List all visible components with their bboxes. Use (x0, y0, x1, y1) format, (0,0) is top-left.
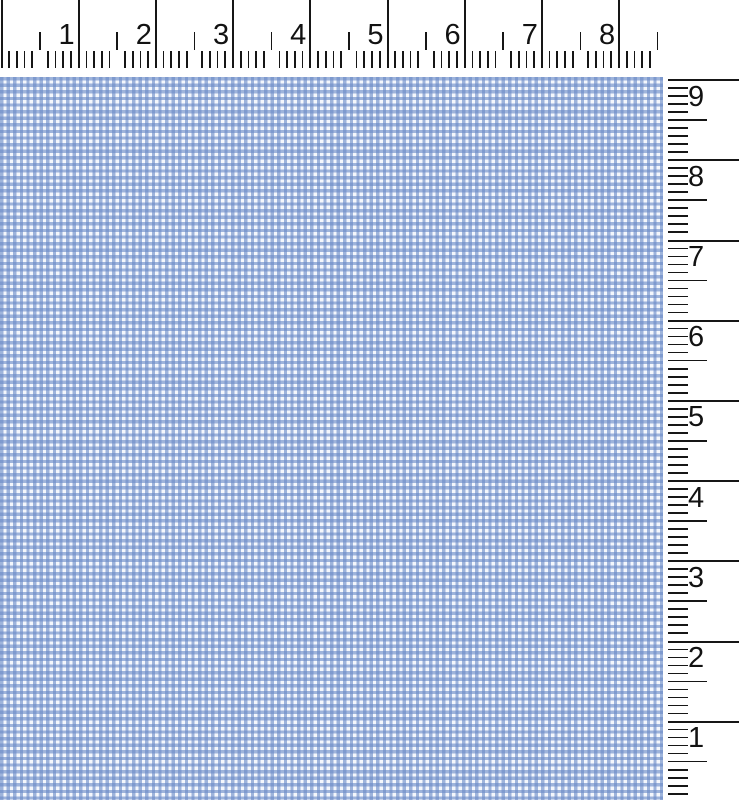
h-tick-fine (340, 51, 342, 68)
h-tick-fine (24, 51, 26, 68)
v-tick-fine (668, 256, 688, 258)
v-tick-fine (668, 608, 688, 610)
v-ruler-number-1: 1 (688, 724, 728, 753)
h-tick-fine (317, 51, 319, 68)
h-tick-fine (472, 51, 474, 68)
v-tick-fine (668, 135, 688, 137)
h-tick-major (541, 0, 543, 68)
h-tick-fine (379, 51, 381, 68)
h-tick-fine (140, 51, 142, 68)
h-tick-fine (417, 51, 419, 68)
h-tick-fine (224, 51, 226, 68)
v-tick-fine (668, 231, 688, 233)
v-tick-fine (668, 632, 688, 634)
v-tick-fine (668, 328, 688, 330)
v-tick-fine (668, 777, 688, 779)
h-tick-fine (70, 51, 72, 68)
h-tick-fine (279, 51, 281, 68)
v-tick-fine (668, 207, 688, 209)
h-tick-major (618, 0, 620, 68)
h-tick-fine (356, 51, 358, 68)
v-tick-fine (668, 496, 688, 498)
v-tick-half (668, 520, 707, 522)
v-tick-fine (668, 215, 688, 217)
h-tick-fine (487, 51, 489, 68)
h-ruler-number-6: 6 (417, 21, 461, 50)
v-tick-half (668, 119, 707, 121)
v-tick-fine (668, 336, 688, 338)
h-tick-fine (610, 51, 612, 68)
v-tick-fine (668, 384, 688, 386)
v-tick-fine (668, 432, 688, 434)
h-tick-major (155, 0, 157, 68)
h-tick-fine (47, 51, 49, 68)
v-ruler-number-3: 3 (688, 564, 728, 593)
v-tick-fine (668, 127, 688, 129)
v-tick-fine (668, 689, 688, 691)
v-tick-fine (668, 472, 688, 474)
v-tick-half (668, 440, 707, 442)
h-tick-fine (363, 51, 365, 68)
v-tick-half (668, 761, 707, 763)
h-tick-fine (595, 51, 597, 68)
h-tick-fine (402, 51, 404, 68)
v-tick-fine (668, 448, 688, 450)
h-tick-major (464, 0, 466, 68)
v-tick-fine (668, 424, 688, 426)
h-tick-fine (441, 51, 443, 68)
vertical-ruler: 987654321 (663, 0, 739, 800)
v-tick-fine (668, 649, 688, 651)
v-tick-fine (668, 584, 688, 586)
v-tick-fine (668, 143, 688, 145)
h-tick-fine (649, 51, 651, 68)
h-ruler-number-3: 3 (185, 21, 229, 50)
h-tick-fine (410, 51, 412, 68)
h-tick-fine (518, 51, 520, 68)
h-tick-fine (178, 51, 180, 68)
v-tick-fine (668, 528, 688, 530)
v-tick-fine (668, 103, 688, 105)
h-tick-fine (101, 51, 103, 68)
h-tick-major (387, 0, 389, 68)
h-tick-fine (8, 51, 10, 68)
h-tick-fine (240, 51, 242, 68)
h-ruler-number-8: 8 (571, 21, 615, 50)
h-tick-fine (302, 51, 304, 68)
h-tick-fine (86, 51, 88, 68)
h-tick-fine (495, 51, 497, 68)
v-tick-fine (668, 264, 688, 266)
v-tick-fine (668, 416, 688, 418)
v-tick-half (668, 280, 707, 282)
v-tick-half (668, 360, 707, 362)
h-tick-fine (55, 51, 57, 68)
v-tick-fine (668, 705, 688, 707)
v-tick-fine (668, 616, 688, 618)
fabric-swatch (0, 77, 663, 800)
v-tick-fine (668, 296, 688, 298)
v-ruler-number-6: 6 (688, 323, 728, 352)
h-tick-fine (433, 51, 435, 68)
v-tick-fine (668, 512, 688, 514)
v-tick-fine (668, 753, 688, 755)
v-tick-fine (668, 312, 688, 314)
h-tick-fine (255, 51, 257, 68)
h-tick-fine (217, 51, 219, 68)
h-tick-fine (549, 51, 551, 68)
h-tick-fine (325, 51, 327, 68)
h-tick-fine (186, 51, 188, 68)
v-tick-fine (668, 183, 688, 185)
h-tick-fine (572, 51, 574, 68)
v-tick-fine (668, 368, 688, 370)
h-tick-fine (587, 51, 589, 68)
v-tick-fine (668, 544, 688, 546)
v-tick-fine (668, 793, 688, 795)
h-tick-fine (333, 51, 335, 68)
v-ruler-number-8: 8 (688, 163, 728, 192)
h-tick-fine (556, 51, 558, 68)
v-tick-fine (668, 223, 688, 225)
v-tick-fine (668, 456, 688, 458)
h-tick-fine (170, 51, 172, 68)
v-tick-fine (668, 408, 688, 410)
h-tick-fine (248, 51, 250, 68)
h-ruler-number-2: 2 (108, 21, 152, 50)
h-tick-fine (371, 51, 373, 68)
h-tick-major (309, 0, 311, 68)
v-tick-fine (668, 697, 688, 699)
h-tick-major (1, 0, 3, 68)
h-tick-major (232, 0, 234, 68)
v-tick-fine (668, 785, 688, 787)
h-tick-fine (286, 51, 288, 68)
v-tick-fine (668, 536, 688, 538)
h-tick-fine (132, 51, 134, 68)
v-tick-fine (668, 624, 688, 626)
h-tick-fine (163, 51, 165, 68)
v-tick-fine (668, 95, 688, 97)
v-tick-fine (668, 576, 688, 578)
v-tick-fine (668, 272, 688, 274)
v-tick-fine (668, 745, 688, 747)
v-tick-fine (668, 737, 688, 739)
v-tick-fine (668, 376, 688, 378)
v-tick-half (668, 199, 707, 201)
h-tick-fine (209, 51, 211, 68)
h-tick-fine (626, 51, 628, 68)
v-tick-fine (668, 504, 688, 506)
v-tick-fine (668, 288, 688, 290)
h-tick-fine (62, 51, 64, 68)
h-ruler-number-1: 1 (31, 21, 75, 50)
horizontal-ruler: 12345678 (0, 0, 739, 77)
h-ruler-number-5: 5 (340, 21, 384, 50)
v-tick-fine (668, 552, 688, 554)
h-tick-fine (603, 51, 605, 68)
v-tick-fine (668, 592, 688, 594)
v-tick-fine (668, 657, 688, 659)
h-tick-fine (448, 51, 450, 68)
h-tick-fine (124, 51, 126, 68)
h-tick-fine (479, 51, 481, 68)
v-tick-fine (668, 248, 688, 250)
v-ruler-number-5: 5 (688, 403, 728, 432)
h-tick-fine (510, 51, 512, 68)
v-tick-fine (668, 344, 688, 346)
h-tick-fine (634, 51, 636, 68)
v-tick-fine (668, 191, 688, 193)
v-tick-fine (668, 488, 688, 490)
v-tick-fine (668, 713, 688, 715)
h-tick-fine (263, 51, 265, 68)
h-tick-fine (533, 51, 535, 68)
v-tick-fine (668, 151, 688, 153)
v-tick-fine (668, 392, 688, 394)
h-tick-fine (394, 51, 396, 68)
fabric-ruler-viewport: 12345678 987654321 (0, 0, 739, 800)
h-tick-major (78, 0, 80, 68)
h-ruler-number-7: 7 (494, 21, 538, 50)
v-tick-fine (668, 665, 688, 667)
h-tick-fine (456, 51, 458, 68)
h-ruler-number-4: 4 (262, 21, 306, 50)
v-tick-half (668, 681, 707, 683)
v-tick-half (668, 600, 707, 602)
v-ruler-number-2: 2 (688, 644, 728, 673)
v-tick-fine (668, 167, 688, 169)
h-tick-fine (564, 51, 566, 68)
h-tick-fine (109, 51, 111, 68)
v-tick-fine (668, 175, 688, 177)
h-tick-fine (93, 51, 95, 68)
v-tick-fine (668, 673, 688, 675)
v-ruler-number-4: 4 (688, 484, 728, 513)
v-tick-fine (668, 87, 688, 89)
h-tick-fine (31, 51, 33, 68)
v-tick-fine (668, 111, 688, 113)
h-tick-fine (201, 51, 203, 68)
v-tick-fine (668, 769, 688, 771)
h-tick-fine (526, 51, 528, 68)
v-ruler-number-9: 9 (688, 83, 728, 112)
v-tick-fine (668, 729, 688, 731)
v-ruler-number-7: 7 (688, 243, 728, 272)
h-tick-fine (16, 51, 18, 68)
v-tick-fine (668, 568, 688, 570)
h-tick-fine (641, 51, 643, 68)
v-tick-fine (668, 464, 688, 466)
h-tick-half (657, 32, 659, 50)
v-tick-fine (668, 304, 688, 306)
v-tick-fine (668, 352, 688, 354)
h-tick-fine (147, 51, 149, 68)
h-tick-fine (294, 51, 296, 68)
